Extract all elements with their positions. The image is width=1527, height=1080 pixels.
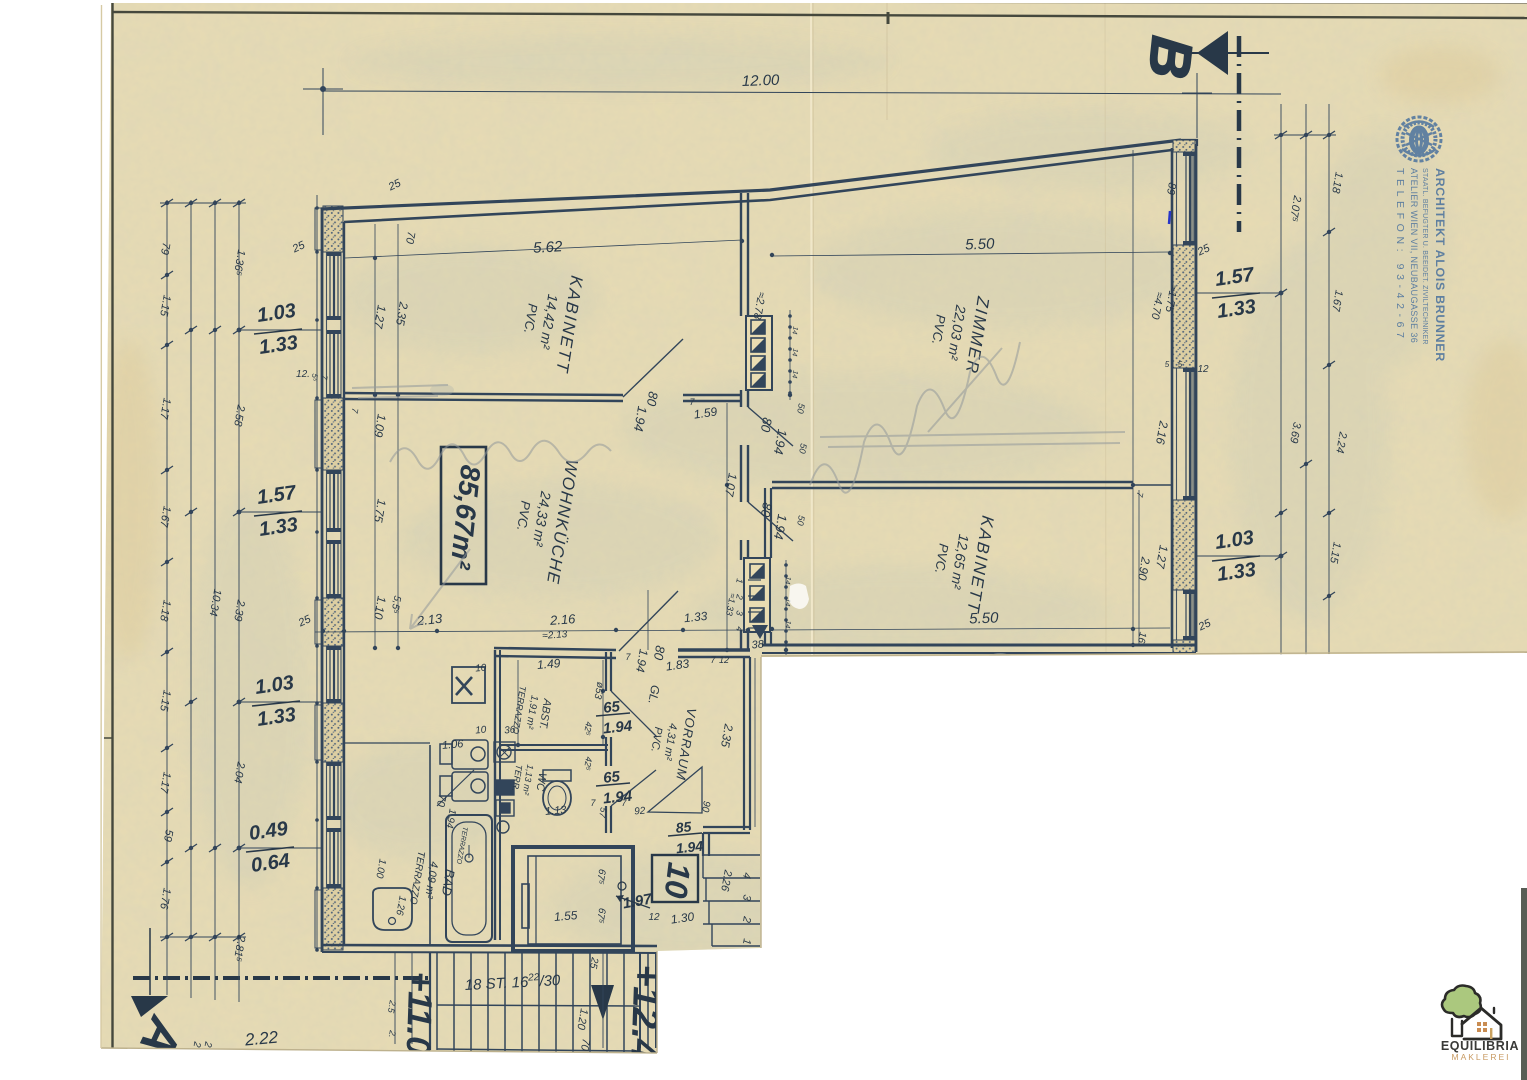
svg-text:12.00: 12.00: [742, 72, 781, 90]
svg-text:92: 92: [634, 806, 646, 818]
svg-text:10: 10: [475, 663, 487, 675]
svg-text:50: 50: [795, 403, 807, 415]
svg-text:1.94: 1.94: [675, 838, 704, 857]
svg-text:10: 10: [475, 725, 487, 737]
svg-text:10: 10: [657, 860, 697, 900]
svg-text:2.13: 2.13: [415, 611, 443, 629]
svg-text:2.: 2.: [387, 1029, 398, 1039]
svg-text:14: 14: [783, 620, 791, 629]
svg-text:5.50: 5.50: [969, 609, 999, 627]
svg-text:EQUILIBRIA: EQUILIBRIA: [1441, 1039, 1519, 1053]
svg-text:TELEFON: 93-42-67: TELEFON: 93-42-67: [1394, 168, 1406, 343]
svg-text:14: 14: [790, 370, 798, 379]
svg-text:≈2.13: ≈2.13: [542, 629, 568, 642]
svg-text:59: 59: [161, 828, 175, 842]
svg-text:38: 38: [751, 638, 765, 651]
svg-text:1.55: 1.55: [553, 908, 578, 924]
svg-text:1.94: 1.94: [602, 787, 633, 807]
svg-text:ARCHITEKT ALOIS BRUNNER: ARCHITEKT ALOIS BRUNNER: [1433, 168, 1447, 362]
svg-text:79: 79: [158, 241, 172, 255]
svg-text:2.22: 2.22: [243, 1028, 279, 1050]
svg-text:25: 25: [587, 955, 600, 969]
svg-text:36: 36: [504, 725, 516, 737]
svg-text:B: B: [1136, 33, 1205, 81]
svg-text:MAKLEREI: MAKLEREI: [1452, 1052, 1511, 1062]
svg-text:12: 12: [1197, 364, 1209, 375]
svg-text:14: 14: [790, 348, 798, 357]
svg-text:2.16: 2.16: [549, 611, 577, 628]
svg-text:1.49: 1.49: [536, 656, 561, 672]
svg-text:14: 14: [783, 576, 791, 585]
svg-text:12: 12: [719, 655, 729, 665]
svg-text:14: 14: [790, 326, 798, 335]
svg-text:50: 50: [795, 515, 807, 527]
svg-text:89: 89: [1164, 181, 1178, 195]
svg-text:1.94: 1.94: [602, 717, 633, 737]
svg-text:5: 5: [1165, 360, 1170, 369]
svg-text:12: 12: [648, 912, 660, 923]
svg-text:1.06: 1.06: [442, 738, 465, 752]
svg-text:5.62: 5.62: [533, 238, 564, 257]
svg-text:5.50: 5.50: [965, 235, 995, 253]
svg-text:1.33: 1.33: [683, 609, 708, 625]
svg-text:50: 50: [797, 443, 809, 455]
svg-text:85: 85: [675, 818, 692, 836]
svg-text:5: 5: [1178, 360, 1183, 369]
svg-text:+12.4: +12.4: [622, 964, 667, 1062]
svg-text:ATELIER WIEN VII, NEUBAUGASSE: ATELIER WIEN VII, NEUBAUGASSE 36: [1409, 168, 1419, 343]
svg-text:12.: 12.: [296, 369, 310, 380]
svg-text:+11.0: +11.0: [399, 971, 440, 1056]
svg-text:STAATL. BEFUGTER U. BEEIDET. Z: STAATL. BEFUGTER U. BEEIDET. ZIVILTECHNI…: [1421, 168, 1428, 345]
svg-text:1.13: 1.13: [545, 804, 568, 818]
